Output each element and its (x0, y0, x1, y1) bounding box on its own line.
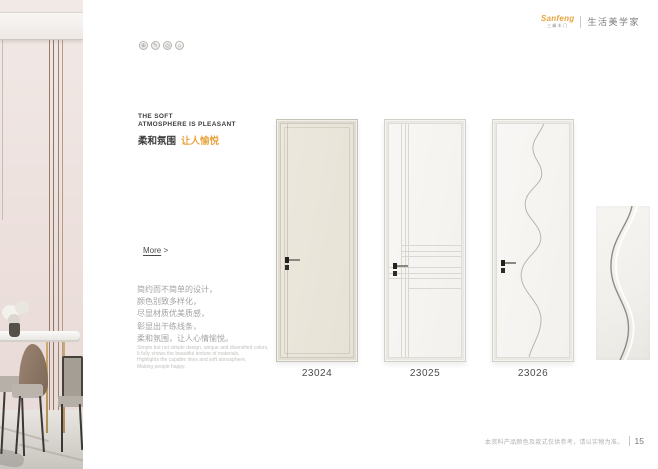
product-card-23026: 23026 (492, 119, 574, 381)
product-card-23025: 23025 (384, 119, 466, 381)
logo-divider (580, 16, 581, 28)
footer-divider (629, 436, 630, 446)
groove-line (405, 124, 406, 357)
heading-line1: THE SOFT (138, 113, 236, 121)
door-edge-line (287, 124, 288, 357)
wall-trim-line (2, 40, 3, 220)
groove-detail-swatch (596, 206, 650, 360)
groove-line (401, 124, 402, 357)
description-en-line: Making people happy. (137, 364, 268, 370)
door-frame (276, 119, 358, 362)
vase (9, 323, 20, 337)
feature-icons-row: ⊕ ✎ ◎ ⌂ (139, 41, 184, 50)
door-slab-line-grooves (388, 123, 462, 358)
description-zh-line: 彰显出干练线条， (137, 321, 233, 333)
door-slab-wave-groove (496, 123, 570, 358)
page-number: 15 (635, 436, 644, 446)
brand-logo: Sanfeng 三峰木门 生活美学家 (541, 15, 640, 28)
material-badge-icon: ◎ (163, 41, 172, 50)
description-en: Simple but not simple design, unique and… (137, 345, 268, 370)
brand-tagline: 生活美学家 (587, 15, 640, 28)
crown-molding (0, 12, 83, 40)
description-zh: 简约而不简单的设计， 颜色别致多样化， 尽显材质优美质感， 彰显出干练线条， 柔… (137, 284, 233, 345)
door-handle-icon (390, 263, 408, 278)
dining-chair (62, 356, 83, 398)
more-link[interactable]: More > (143, 246, 168, 255)
product-model-label: 23026 (492, 368, 574, 379)
product-card-23024: 23024 (276, 119, 358, 381)
product-model-label: 23025 (384, 368, 466, 379)
handle-lock (501, 268, 505, 273)
wall-trim-line (58, 40, 59, 412)
product-model-label: 23024 (276, 368, 358, 379)
section-heading-en: THE SOFT ATMOSPHERE IS PLEASANT (138, 113, 236, 128)
catalog-page: Sanfeng 三峰木门 生活美学家 ⊕ ✎ ◎ ⌂ THE SOFT ATMO… (0, 0, 658, 469)
door-handle-icon (282, 257, 300, 272)
door-slab-plain (280, 123, 354, 358)
eco-badge-icon: ⌂ (175, 41, 184, 50)
door-frame (492, 119, 574, 362)
chair-leg (61, 404, 63, 452)
handle-lever (397, 265, 408, 267)
interior-photo (0, 0, 83, 469)
more-link-label: More (143, 246, 161, 255)
flower-bouquet (15, 301, 29, 314)
more-link-arrow: > (161, 246, 168, 255)
wave-groove-line (497, 124, 569, 357)
section-heading-zh: 柔和氛围让人愉悦 (138, 133, 219, 147)
door-frame (384, 119, 466, 362)
disclaimer-text: 本资料产品颜色及款式仅供参考，请以实物为准。 (485, 437, 624, 446)
door-panel-outline (284, 127, 350, 354)
handle-lever (505, 262, 516, 264)
door-handle-icon (498, 260, 516, 275)
description-zh-line: 柔和氛围，让人心情愉悦。 (137, 333, 233, 345)
heading-zh-accent: 让人愉悦 (181, 136, 219, 147)
groove-line (408, 288, 461, 289)
groove-detail-curve (596, 206, 650, 360)
brand-name: Sanfeng (541, 15, 575, 23)
handle-lever (289, 259, 300, 261)
groove-line (401, 245, 461, 246)
groove-line (401, 251, 461, 252)
brand-wordmark: Sanfeng 三峰木门 (541, 15, 575, 28)
quality-badge-icon: ⊕ (139, 41, 148, 50)
handle-lock (285, 265, 289, 270)
design-badge-icon: ✎ (151, 41, 160, 50)
description-zh-line: 尽显材质优美质感， (137, 308, 233, 320)
wall-trim-line (49, 40, 50, 412)
heading-zh-primary: 柔和氛围 (138, 136, 176, 147)
description-zh-line: 简约而不简单的设计， (137, 284, 233, 296)
brand-name-chinese: 三峰木门 (547, 24, 568, 28)
groove-line (389, 278, 461, 279)
description-zh-line: 颜色别致多样化， (137, 296, 233, 308)
groove-line (408, 124, 409, 357)
wall-trim-line (53, 40, 54, 412)
heading-line2: ATMOSPHERE IS PLEASANT (138, 121, 236, 129)
handle-lock (393, 271, 397, 276)
page-footer: 本资料产品颜色及款式仅供参考，请以实物为准。 15 (485, 436, 644, 446)
groove-line (401, 256, 461, 257)
